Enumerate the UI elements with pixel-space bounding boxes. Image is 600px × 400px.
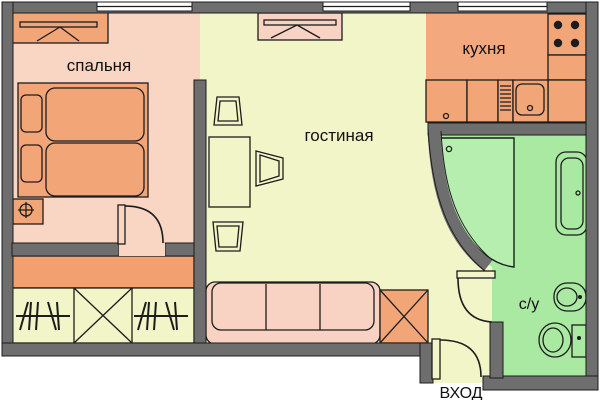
wall-bathroom-left (490, 322, 503, 378)
chair-bottom (213, 222, 243, 251)
closet-shelf-band (12, 256, 194, 288)
pillow (21, 95, 42, 132)
side-table-x (380, 290, 428, 343)
toilet (539, 323, 586, 357)
floor-plan: спальня гостиная кухня с/у ВХОД (0, 0, 600, 400)
wall-bedroom-bottom (165, 243, 194, 256)
bedside-table (13, 199, 43, 224)
label-bedroom: спальня (67, 56, 132, 75)
floorplan-svg: спальня гостиная кухня с/у ВХОД (0, 0, 600, 400)
window-living (323, 2, 410, 11)
window-kitchen (458, 2, 547, 11)
kitchen-counter-corner (548, 55, 586, 80)
label-bathroom: с/у (519, 296, 539, 313)
washbasin (554, 283, 586, 311)
entrance-door-leaf (432, 339, 440, 379)
pillow (21, 145, 42, 182)
bedroom-door-leaf (118, 205, 125, 244)
wall-kitchen-bathroom (428, 123, 586, 135)
wall-bottom (2, 343, 433, 356)
label-living: гостиная (304, 126, 373, 145)
wall-bedroom-living (194, 80, 206, 343)
wall-right (586, 2, 598, 390)
dining-table (209, 137, 250, 207)
kitchen-sink (513, 80, 548, 122)
chair-top (214, 97, 242, 125)
label-entrance: ВХОД (439, 385, 482, 400)
kitchen-cabinet (467, 80, 498, 122)
sofa (206, 282, 380, 344)
stove (548, 14, 586, 55)
bathtub (556, 152, 587, 235)
bathroom-door-leaf (457, 271, 495, 278)
label-kitchen: кухня (462, 39, 505, 58)
dishwasher (498, 80, 513, 122)
wall-left (2, 2, 13, 356)
wall-bedroom-bottom (12, 243, 119, 256)
window-bedroom (97, 2, 192, 11)
kitchen-counter-corner (548, 80, 586, 122)
kitchen-cabinet (426, 80, 467, 122)
wall-vestibule-left (420, 343, 433, 383)
